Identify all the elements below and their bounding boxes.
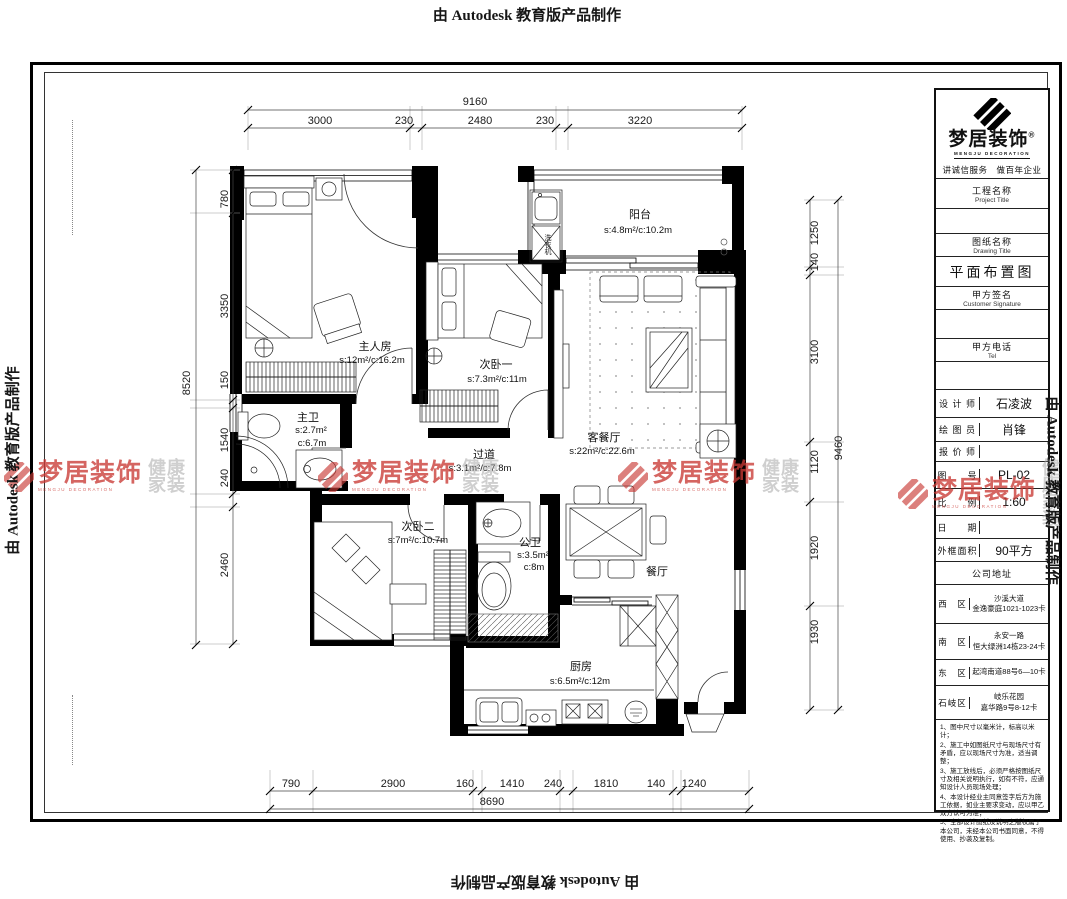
address-shiqi-label: 石岐区 — [936, 697, 970, 709]
address-west: 西 区 沙溪大道 金逸豪庭1021-1023卡 — [936, 585, 1048, 624]
frame-area-label: 外框面积 — [936, 544, 980, 557]
public-bath-toilet — [477, 552, 511, 610]
drawing-label: 图纸名称 — [972, 235, 1012, 248]
autodesk-banner-bottom: 由 Autodesk 教育版产品制作 — [375, 872, 715, 893]
label-dining: 餐厅 — [646, 564, 668, 578]
address-west-value: 沙溪大道 金逸豪庭1021-1023卡 — [970, 593, 1048, 615]
drawing-label-en: Drawing Title — [973, 248, 1011, 255]
label-hallway-area: s:3.1m²/c:7.8m — [449, 463, 512, 474]
coffee-table — [646, 328, 692, 392]
field-estimator: 报 价 师 — [936, 442, 1048, 462]
tel-value — [936, 362, 1048, 390]
address-east-value: 起湾南道88号6—10卡 — [970, 666, 1048, 678]
date-label: 日 期 — [936, 521, 980, 534]
signature-header: 甲方签名 Customer Signature — [936, 287, 1048, 310]
public-bath-shower-floor — [468, 614, 558, 642]
master-bath-shower — [236, 436, 288, 488]
address-shiqi: 石岐区 岐乐花园 嘉华路9号8-12卡 — [936, 686, 1048, 720]
notes-cell: 1、图中尺寸以毫米计，标高以米计； 2、施工中如图纸尺寸与现场尺寸有矛盾，应以现… — [936, 720, 1048, 847]
label-public-bath-s: s:3.5m² — [517, 550, 549, 561]
master-bath-toilet — [238, 412, 280, 440]
master-ceiling-lamp — [255, 339, 273, 357]
field-frame-area: 外框面积 90平方 — [936, 539, 1048, 562]
frame-area-value: 90平方 — [980, 542, 1048, 559]
dim-right-6: 1930 — [809, 620, 821, 644]
note-3: 3、施工放线后，必须严格按图纸尺寸及相关说明执行，如有不符，应通知设计人员现场处… — [940, 768, 1045, 793]
note-4: 4、本设计经业主同意签字后方为施工依据，如业主要求变动，应以甲乙双方认可为准； — [940, 794, 1045, 819]
dim-top-4: 230 — [536, 115, 554, 127]
label-public-bath-c: c:8m — [524, 562, 545, 573]
address-shiqi-value: 岐乐花园 嘉华路9号8-12卡 — [970, 691, 1048, 713]
bedroom2-ceiling-lamp — [426, 348, 442, 364]
scale-label: 比 例 — [936, 496, 980, 509]
title-block: 梦居装饰® MENGJU DECORATION 讲诚信服务 做百年企业 工程名称… — [934, 88, 1050, 812]
label-balcony: 阳台 — [629, 207, 651, 221]
brand-name-en: MENGJU DECORATION — [954, 151, 1030, 159]
field-scale: 比 例 1:60 — [936, 489, 1048, 516]
label-public-bath: 公卫 — [519, 537, 541, 549]
scale-value: 1:60 — [980, 495, 1048, 509]
brand-name: 梦居装饰® — [949, 130, 1036, 149]
brand-slogan: 讲诚信服务 做百年企业 — [942, 164, 1041, 176]
sign-label: 甲方签名 — [972, 288, 1012, 301]
dim-bottom-total: 8690 — [480, 796, 504, 808]
label-bedroom2-area: s:7.3m²/c:11m — [467, 374, 527, 385]
bedroom3-bench — [390, 584, 426, 604]
designer-value: 石凌波 — [980, 395, 1048, 412]
sign-label-en: Customer Signature — [963, 301, 1021, 308]
side-table-lamp — [700, 424, 736, 458]
project-title-value — [936, 209, 1048, 234]
label-living: 客餐厅 — [588, 430, 621, 444]
brand-reg: ® — [1029, 131, 1036, 140]
dim-left-2: 3350 — [219, 294, 231, 318]
draftsman-value: 肖锋 — [980, 421, 1048, 438]
label-bedroom2: 次卧一 — [480, 357, 513, 371]
dim-right-total: 9460 — [833, 436, 845, 460]
fridge — [620, 606, 656, 646]
dim-bottom-2: 2900 — [381, 778, 405, 790]
note-5: 5、全部设计图纸及说明之版权属于本公司，未经本公司书面同意，不得使用、抄袭及复制… — [940, 819, 1045, 844]
estimator-label: 报 价 师 — [936, 445, 980, 458]
dim-right-1: 1250 — [809, 221, 821, 245]
project-label-en: Project Title — [975, 197, 1009, 204]
dim-left-4: 1540 — [219, 428, 231, 452]
dim-left-3: 150 — [219, 371, 231, 389]
address-east: 东 区 起湾南道88号6—10卡 — [936, 660, 1048, 686]
drawing-name: 平面布置图 — [936, 257, 1048, 287]
label-master-bath-s: s:2.7m² — [295, 425, 327, 436]
dim-bottom-6: 1810 — [594, 778, 618, 790]
dim-left-total: 8520 — [181, 371, 193, 395]
field-date: 日 期 — [936, 516, 1048, 539]
label-hallway: 过道 — [473, 447, 495, 461]
bedroom3-bed — [314, 522, 392, 640]
dim-left-5: 240 — [219, 469, 231, 487]
draftsman-label: 绘 图 员 — [936, 423, 980, 436]
field-draftsman: 绘 图 员 肖锋 — [936, 418, 1048, 442]
dim-right-2: 140 — [809, 253, 821, 271]
address-east-label: 东 区 — [936, 667, 970, 679]
address-south-label: 南 区 — [936, 636, 970, 648]
address-south: 南 区 永安一路 恒大绿洲14栋23-24卡 — [936, 624, 1048, 660]
label-kitchen: 厨房 — [570, 660, 592, 673]
drawing-title-header: 图纸名称 Drawing Title — [936, 234, 1048, 257]
tel-label: 甲方电话 — [972, 340, 1012, 353]
dim-top-2: 230 — [395, 115, 413, 127]
dim-bottom-4: 1410 — [500, 778, 524, 790]
washing-machine-label: 洗衣机 — [538, 229, 556, 259]
note-1: 1、图中尺寸以毫米计，标高以米计； — [940, 724, 1045, 741]
master-armchair — [313, 293, 364, 344]
entry-porch — [686, 714, 724, 732]
dim-right-4: 1120 — [809, 450, 821, 474]
master-wardrobe — [246, 362, 356, 392]
dining-table — [566, 486, 666, 578]
dim-top-3: 2480 — [468, 115, 492, 127]
label-master: 主人房 — [359, 340, 392, 353]
project-label: 工程名称 — [972, 184, 1012, 197]
tv-cabinet — [554, 290, 569, 438]
dim-bottom-7: 140 — [647, 778, 665, 790]
note-2: 2、施工中如图纸尺寸与现场尺寸有矛盾，应以现场尺寸为准，适当调整； — [940, 742, 1045, 767]
kitchen-counter — [464, 690, 654, 726]
dim-bottom-5: 240 — [544, 778, 562, 790]
label-bedroom3-area: s:7m²/c:10.7m — [388, 535, 448, 546]
autodesk-banner-right: 由 Autodesk 教育版产品制作 — [1043, 321, 1064, 661]
dim-bottom-1: 790 — [282, 778, 300, 790]
autodesk-banner-top: 由 Autodesk 教育版产品制作 — [357, 4, 697, 25]
drawing-no-value: PL-02 — [980, 468, 1048, 482]
tel-header: 甲方电话 Tel — [936, 339, 1048, 362]
dim-top-5: 3220 — [628, 115, 652, 127]
company-address-header: 公司地址 — [936, 562, 1048, 585]
label-bedroom3: 次卧二 — [402, 519, 435, 533]
bedroom3-wardrobe — [434, 550, 466, 640]
label-master-bath-c: c:6.7m — [298, 438, 327, 449]
company-logo-cell: 梦居装饰® MENGJU DECORATION 讲诚信服务 做百年企业 — [936, 90, 1048, 179]
hatched-wall-column — [656, 595, 678, 699]
company-logo-icon — [973, 98, 1011, 130]
dim-top-1: 3000 — [308, 115, 332, 127]
bedroom2-wardrobe — [420, 390, 498, 422]
label-kitchen-area: s:6.5m²/c:12m — [550, 676, 610, 687]
dim-top-total: 9160 — [463, 96, 487, 108]
signature-value — [936, 310, 1048, 339]
dim-left-1: 780 — [219, 190, 231, 208]
field-drawing-no: 图 号 PL-02 — [936, 462, 1048, 489]
floor-plan-svg: 9160 3000 230 2480 230 3220 8520 780 335… — [0, 0, 1067, 899]
address-south-value: 永安一路 恒大绿洲14栋23-24卡 — [970, 630, 1048, 652]
field-designer: 设 计 师 石凌波 — [936, 390, 1048, 418]
drawing-no-label: 图 号 — [936, 469, 980, 482]
dim-right-3: 3100 — [809, 340, 821, 364]
dim-bottom-3: 160 — [456, 778, 474, 790]
dim-left-6: 2460 — [219, 553, 231, 577]
address-west-label: 西 区 — [936, 598, 970, 610]
dim-right-5: 1920 — [809, 536, 821, 560]
autodesk-banner-left: 由 Autodesk 教育版产品制作 — [2, 291, 23, 631]
tel-label-en: Tel — [988, 353, 996, 360]
label-balcony-area: s:4.8m²/c:10.2m — [604, 225, 672, 236]
label-master-bath: 主卫 — [297, 411, 319, 424]
master-bath-vanity — [296, 450, 342, 488]
project-title-header: 工程名称 Project Title — [936, 179, 1048, 209]
designer-label: 设 计 师 — [936, 397, 980, 410]
dim-bottom-8: 1240 — [682, 778, 706, 790]
label-living-area: s:22m²/c:22.6m — [569, 446, 635, 457]
label-master-area: s:12m²/c:16.2m — [339, 355, 405, 366]
